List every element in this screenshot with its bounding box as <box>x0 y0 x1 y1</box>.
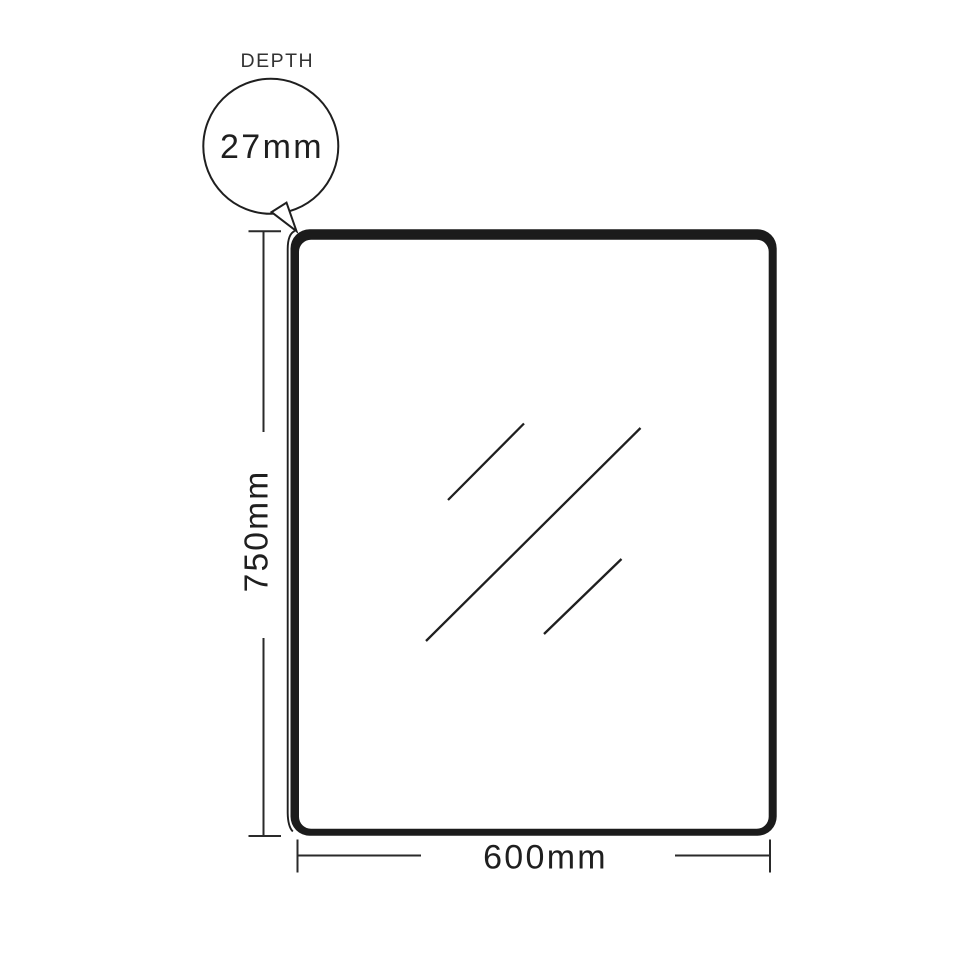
svg-text:600mm: 600mm <box>483 839 608 877</box>
svg-text:27mm: 27mm <box>220 128 324 166</box>
svg-text:DEPTH: DEPTH <box>241 50 315 72</box>
svg-text:750mm: 750mm <box>239 470 276 593</box>
